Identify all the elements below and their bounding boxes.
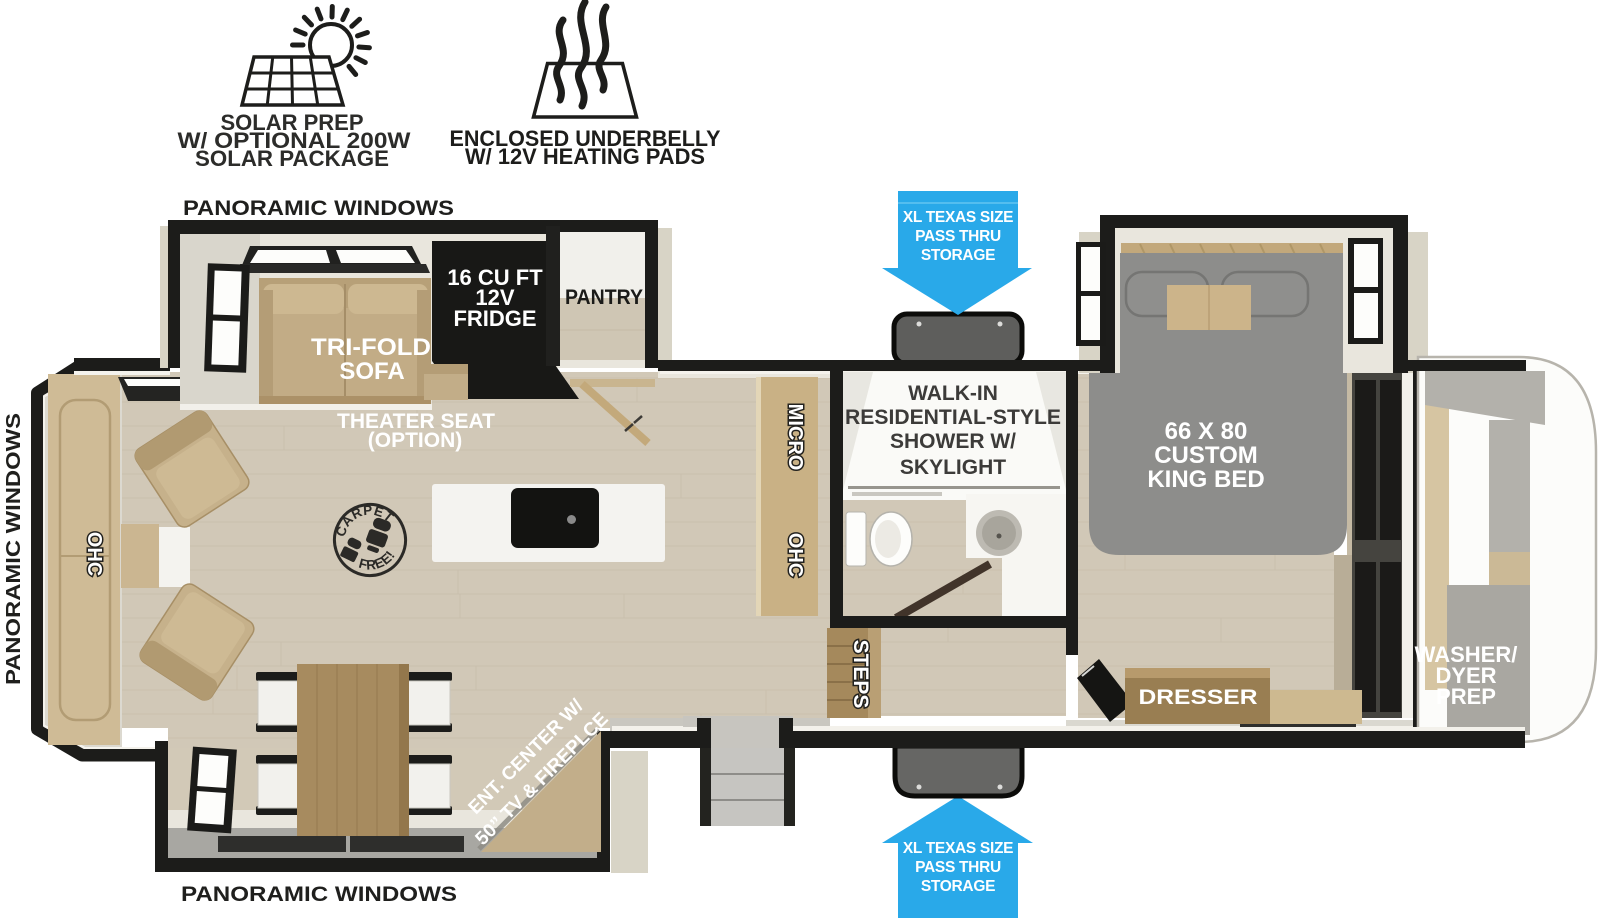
svg-text:SKYLIGHT: SKYLIGHT	[900, 456, 1006, 479]
svg-text:PREP: PREP	[1436, 684, 1496, 709]
svg-text:MICRO: MICRO	[784, 404, 806, 471]
svg-text:STORAGE: STORAGE	[921, 878, 995, 895]
svg-text:OHC: OHC	[83, 532, 105, 576]
svg-text:STORAGE: STORAGE	[921, 247, 995, 264]
svg-text:PANORAMIC WINDOWS: PANORAMIC WINDOWS	[3, 413, 25, 685]
svg-text:RESIDENTIAL-STYLE: RESIDENTIAL-STYLE	[845, 406, 1061, 429]
svg-text:PANORAMIC WINDOWS: PANORAMIC WINDOWS	[183, 197, 454, 220]
svg-text:SOLAR PACKAGE: SOLAR PACKAGE	[195, 146, 389, 171]
svg-text:PASS THRU: PASS THRU	[915, 228, 1001, 245]
svg-text:DRESSER: DRESSER	[1139, 686, 1258, 709]
svg-text:TRI-FOLD: TRI-FOLD	[311, 334, 431, 361]
svg-text:WALK-IN: WALK-IN	[908, 382, 998, 405]
svg-text:XL TEXAS SIZE: XL TEXAS SIZE	[903, 209, 1013, 226]
svg-text:(OPTION): (OPTION)	[368, 429, 463, 452]
svg-text:FRIDGE: FRIDGE	[453, 306, 536, 331]
svg-text:PASS THRU: PASS THRU	[915, 859, 1001, 876]
svg-text:CUSTOM: CUSTOM	[1154, 442, 1258, 469]
svg-text:SHOWER W/: SHOWER W/	[890, 430, 1016, 453]
svg-text:OHC: OHC	[784, 533, 806, 577]
svg-text:PANTRY: PANTRY	[565, 286, 643, 309]
svg-text:SOFA: SOFA	[339, 358, 404, 385]
svg-text:66 X 80: 66 X 80	[1165, 418, 1248, 445]
svg-text:W/ 12V HEATING PADS: W/ 12V HEATING PADS	[465, 144, 705, 169]
svg-text:KING BED: KING BED	[1147, 466, 1264, 493]
svg-text:STEPS: STEPS	[849, 640, 872, 709]
svg-text:XL TEXAS SIZE: XL TEXAS SIZE	[903, 840, 1013, 857]
svg-text:PANORAMIC WINDOWS: PANORAMIC WINDOWS	[181, 883, 457, 906]
